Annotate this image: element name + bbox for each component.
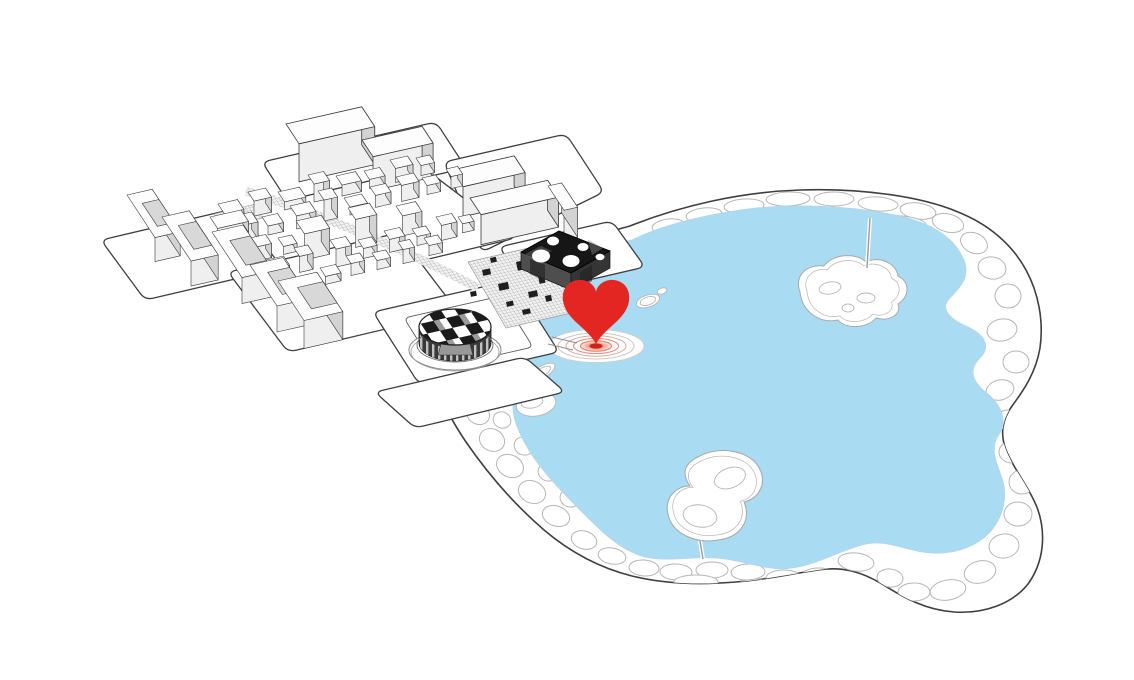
island-blob (857, 293, 875, 303)
park-cell (814, 192, 854, 206)
building-box (446, 166, 463, 188)
site-diagram (0, 0, 1134, 680)
roof-opening (532, 250, 550, 263)
island-blob (842, 304, 854, 312)
park-cell (1009, 470, 1035, 494)
park-cell (995, 284, 1021, 308)
market-stall (545, 295, 552, 302)
ripple-center-dot (590, 343, 603, 348)
park-cell (999, 441, 1025, 463)
park-cell (736, 579, 784, 593)
roof-opening (596, 254, 605, 260)
park-cell (898, 583, 930, 601)
drum-entrance-panel (438, 344, 473, 355)
park-cell (1003, 351, 1029, 373)
roof-opening (547, 237, 559, 246)
park-cell (1004, 502, 1032, 526)
park-cell (674, 575, 718, 589)
island-north (798, 256, 907, 327)
roof-opening (578, 243, 589, 251)
site-diagram-canvas (0, 0, 1134, 680)
roof-opening (563, 255, 580, 267)
